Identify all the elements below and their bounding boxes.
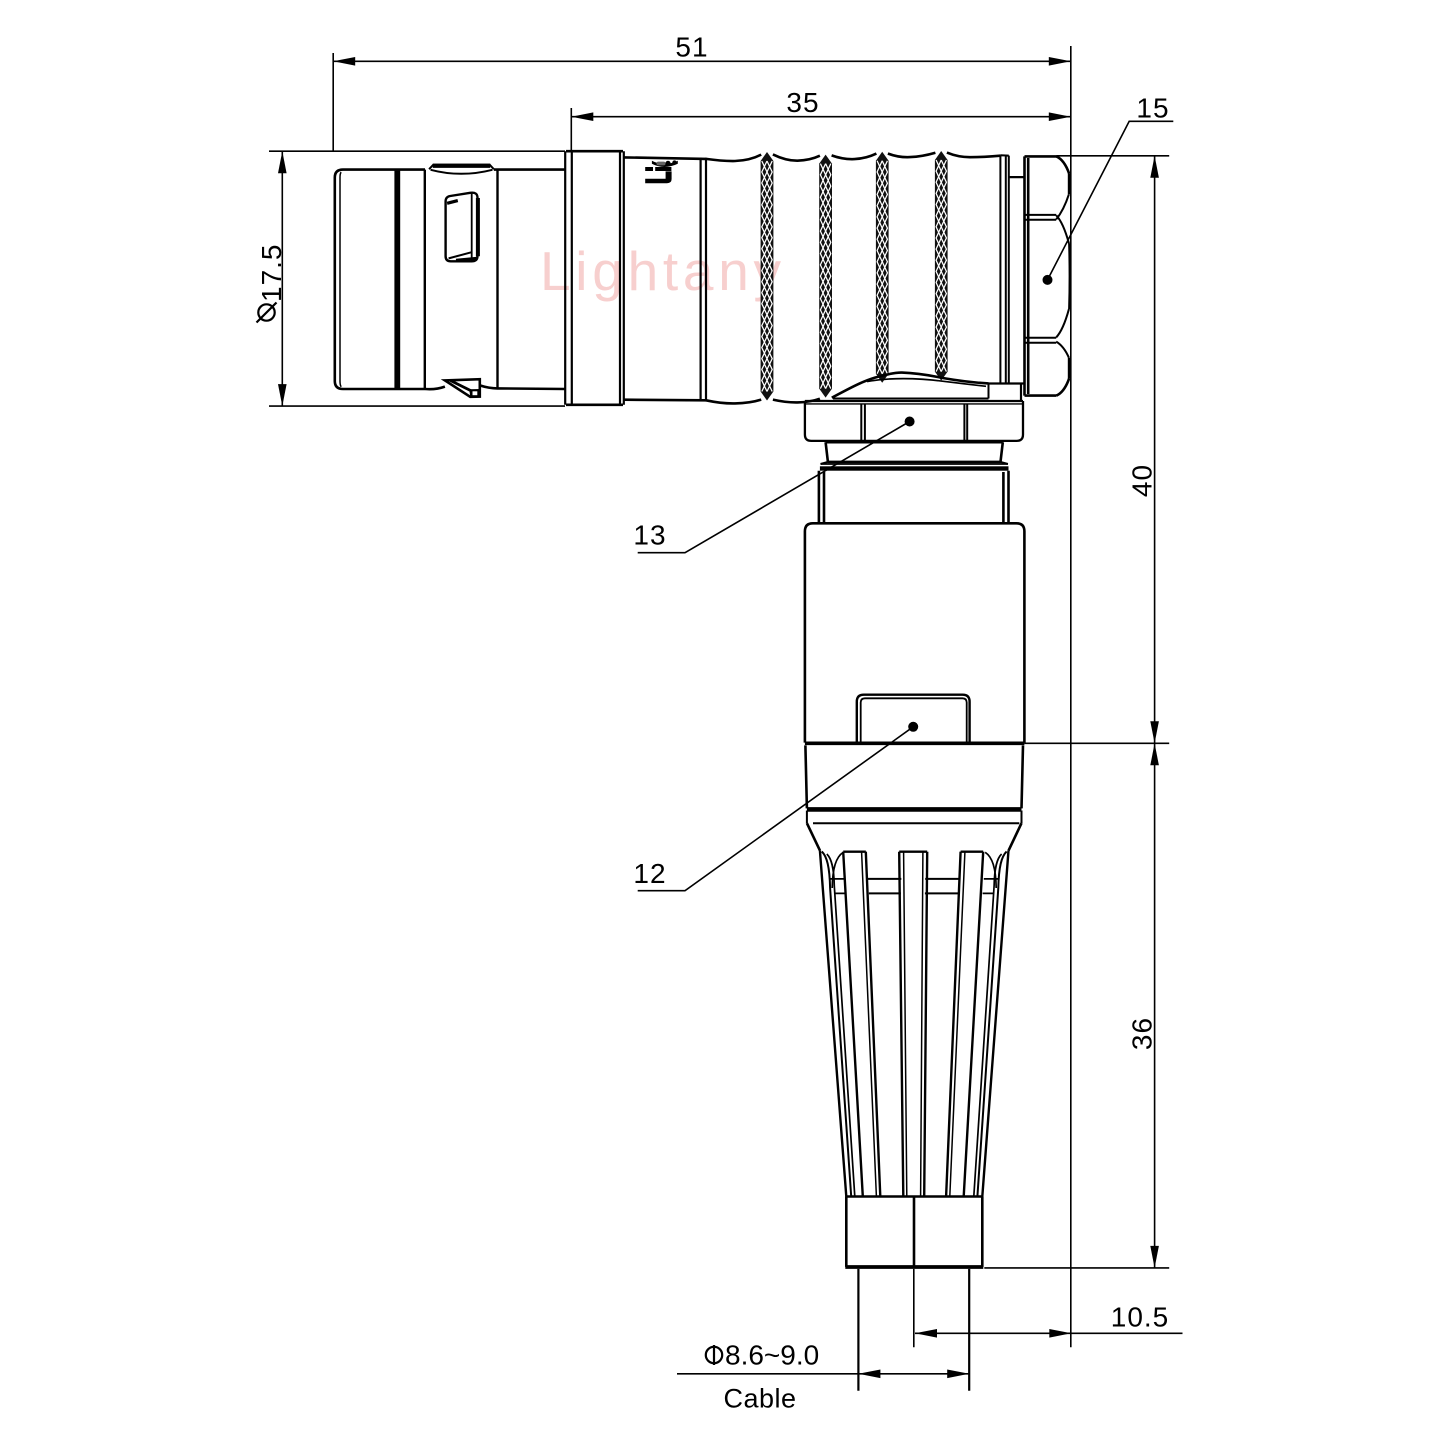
svg-text:13: 13 [633, 520, 666, 551]
svg-text:17.5: 17.5 [256, 244, 287, 303]
svg-text:35: 35 [786, 87, 819, 118]
svg-text:12: 12 [633, 858, 666, 889]
svg-text:8.6~9.0: 8.6~9.0 [725, 1340, 819, 1371]
svg-text:36: 36 [1127, 1017, 1158, 1050]
svg-text:15: 15 [1136, 93, 1169, 124]
svg-text:10.5: 10.5 [1111, 1302, 1170, 1333]
svg-text:Cable: Cable [723, 1384, 796, 1414]
svg-text:40: 40 [1127, 464, 1158, 497]
svg-text:51: 51 [675, 32, 708, 63]
